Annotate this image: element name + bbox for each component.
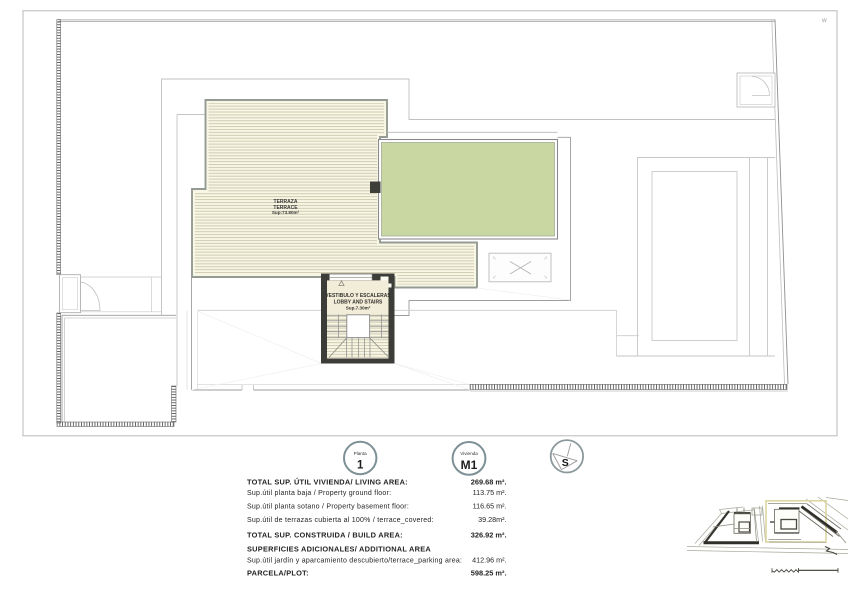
svg-text:TOTAL SUP. CONSTRUIDA / BUILD: TOTAL SUP. CONSTRUIDA / BUILD AREA: [247, 531, 403, 540]
svg-text:LOBBY AND STAIRS: LOBBY AND STAIRS [334, 299, 383, 305]
svg-text:Sup.útil de terrazas cubierta: Sup.útil de terrazas cubierta al 100% / … [247, 517, 434, 524]
svg-text:116.65 m².: 116.65 m². [473, 502, 507, 511]
svg-text:M1: M1 [461, 458, 478, 472]
svg-text:TOTAL SUP. ÚTIL VIVIENDA/ LIV: TOTAL SUP. ÚTIL VIVIENDA/ LIVING AREA: [247, 478, 408, 487]
svg-text:Planta: Planta [354, 451, 367, 456]
svg-text:326.92 m².: 326.92 m². [471, 531, 507, 540]
svg-text:412.96 m².: 412.96 m². [472, 556, 506, 565]
svg-text:Sup.útil planta sotano / Prope: Sup.útil planta sotano / Property baseme… [247, 504, 409, 511]
svg-text:SUPERFICIES ADICIONALES/ ADDIT: SUPERFICIES ADICIONALES/ ADDITIONAL AREA [247, 545, 431, 554]
svg-text:269.68 m².: 269.68 m². [471, 478, 507, 487]
svg-text:VESTIBULO Y ESCALERAS: VESTIBULO Y ESCALERAS [325, 293, 391, 299]
svg-text:Sup.útil planta baja / Propert: Sup.útil planta baja / Property ground f… [247, 490, 391, 497]
svg-text:Sup:73.80m²: Sup:73.80m² [272, 210, 300, 215]
svg-text:Sup.7.30m²: Sup.7.30m² [346, 306, 371, 311]
svg-text:w: w [821, 17, 827, 24]
svg-text:113.75 m².: 113.75 m². [473, 488, 507, 497]
svg-text:1: 1 [357, 460, 364, 472]
svg-text:Sup.útil jardín y aparcamiento: Sup.útil jardín y aparcamiento descubier… [247, 558, 462, 565]
svg-text:598.25 m².: 598.25 m². [471, 569, 507, 578]
svg-text:Vivienda: Vivienda [460, 451, 478, 456]
svg-text:S: S [562, 457, 569, 469]
svg-text:PARCELA/PLOT:: PARCELA/PLOT: [247, 569, 309, 578]
svg-text:39.28m².: 39.28m². [478, 515, 506, 524]
